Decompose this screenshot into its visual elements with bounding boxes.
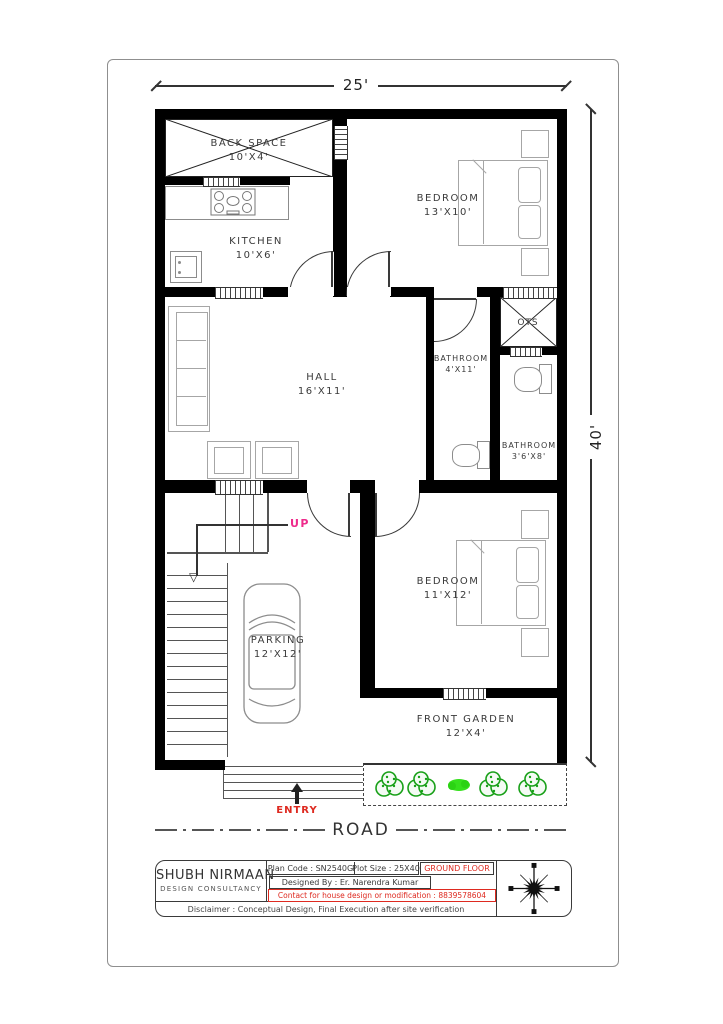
pillow [516,585,539,619]
hall-parking-door-leaf [348,493,350,536]
wall-parking-bedroom [360,480,375,698]
room-size: 10'X6' [196,249,316,263]
title-block: SHUBH NIRMAAN DESIGN CONSULTANCY Plan Co… [155,860,572,917]
room-label-bathroom-2: BATHROOM 3'6'X8' [498,441,560,463]
room-size: 4'X11' [430,365,492,376]
sink-dot [178,271,181,274]
pillow [516,547,539,583]
compass-icon [506,861,562,916]
floor-text: GROUND FLOOR [424,864,490,873]
stairs-up-line-v [196,524,198,576]
nightstand [521,248,549,276]
wall-exterior-right [557,109,567,763]
disclaimer-text: Disclaimer : Conceptual Design, Final Ex… [156,905,496,914]
road-centerline [396,829,567,831]
window-bedroom1-left [334,126,348,160]
bush-icon [374,770,406,798]
room-label-bathroom-1: BATHROOM 4'X11' [430,354,492,376]
designed-by-cell: Designed By : Er. Narendra Kumar [269,876,431,889]
armchair-seat [262,447,292,474]
room-size: 10'X4' [189,151,309,165]
room-label-parking: PARKING 12'X12' [218,634,338,661]
bush-icon [517,770,549,798]
stairs-upper-flight [212,493,269,552]
room-label-back-space: BACK SPACE 10'X4' [189,137,309,164]
wall-hall-bathroom [426,297,434,480]
room-name: BACK SPACE [189,137,309,151]
room-label-front-garden: FRONT GARDEN 12'X4' [406,713,526,740]
stove-icon [210,188,256,216]
room-label-ots: OTS [508,317,548,329]
room-size: 13'X10' [388,206,508,220]
contact-cell: Contact for house design or modification… [268,889,496,902]
entry-arrow-icon [291,783,303,792]
room-size: 12'X12' [218,648,338,662]
width-dimension-label: 25' [334,76,378,94]
opening-hall-parking-door [307,480,350,493]
room-label-kitchen: KITCHEN 10'X6' [196,235,316,262]
opening-bedroom1-door [347,287,390,297]
plan-code-cell: Plan Code : SN2540G [267,862,355,875]
company-name: SHUBH NIRMAAN [156,868,266,883]
room-name: OTS [508,317,548,329]
room-name: PARKING [218,634,338,648]
room-name: KITCHEN [196,235,316,249]
room-size: 16'X11' [262,385,382,399]
entry-arrow-stem [295,792,299,804]
plot-size-text: Plot Size : 25X40 [352,864,420,873]
opening-kitchen-door [288,287,333,297]
window-bedroom2-bottom [443,688,486,700]
height-dimension-label: 40' [587,415,605,459]
window-hall-stairs [215,480,263,495]
wall-exterior-top [155,109,567,119]
nightstand [521,510,549,539]
sofa-seat [176,312,208,426]
room-label-hall: HALL 16'X11' [262,371,382,398]
sofa-cushion-line [176,368,206,369]
pillow [518,167,541,203]
road-label: ROAD [332,820,390,840]
title-block-divider [496,861,497,916]
pillow [518,205,541,239]
stairs-up-line-h [196,524,288,526]
stairs-down-arrow-icon: ▽ [189,570,198,584]
entry-step-line [223,774,370,775]
room-label-bedroom-2: BEDROOM 11'X12' [388,575,508,602]
floor-cell: GROUND FLOOR [420,862,494,875]
bush-icon [406,770,438,798]
nightstand [521,628,549,657]
opening-bedroom2-door [375,480,419,493]
window-backspace [203,177,240,187]
opening-bathroom1-door [434,287,477,297]
wall-exterior-bottom-left [155,760,225,770]
sofa-cushion-line [176,340,206,341]
nightstand [521,130,549,158]
plot-size-cell: Plot Size : 25X40 [354,862,419,875]
contact-text: Contact for house design or modification… [278,891,486,900]
room-name: BATHROOM [430,354,492,365]
entry-label: ENTRY [267,804,327,818]
shrub-icon [446,778,472,792]
room-size: 3'6'X8' [498,452,560,463]
bathroom1-door-leaf [434,298,476,300]
window-ots-bottom [510,347,542,357]
bedroom2-door-leaf [375,493,377,536]
room-name: BEDROOM [388,192,508,206]
stairs-landing-edge [167,552,268,554]
kitchen-sink-basin [175,256,197,278]
bush-icon [478,770,510,798]
room-name: FRONT GARDEN [406,713,526,727]
plan-code-text: Plan Code : SN2540G [268,864,353,873]
room-size: 11'X12' [388,589,508,603]
wall-exterior-left [155,109,165,770]
room-size: 12'X4' [406,727,526,741]
armchair-seat [214,447,244,474]
room-label-bedroom-1: BEDROOM 13'X10' [388,192,508,219]
sofa-cushion-line [176,396,206,397]
company-subtitle: DESIGN CONSULTANCY [156,885,266,893]
room-name: BATHROOM [498,441,560,452]
road-centerline [155,829,326,831]
window-above-ots [503,287,557,299]
room-name: HALL [262,371,382,385]
floor-plan-sheet: 25' 40' [0,0,723,1024]
designed-by-text: Designed By : Er. Narendra Kumar [282,878,419,887]
toilet-bowl [514,367,542,392]
up-label: UP [290,517,310,532]
window-kitchen-hall [215,287,263,299]
toilet-bowl [452,444,480,467]
sink-dot [178,261,181,264]
road: ROAD [155,820,567,840]
room-name: BEDROOM [388,575,508,589]
